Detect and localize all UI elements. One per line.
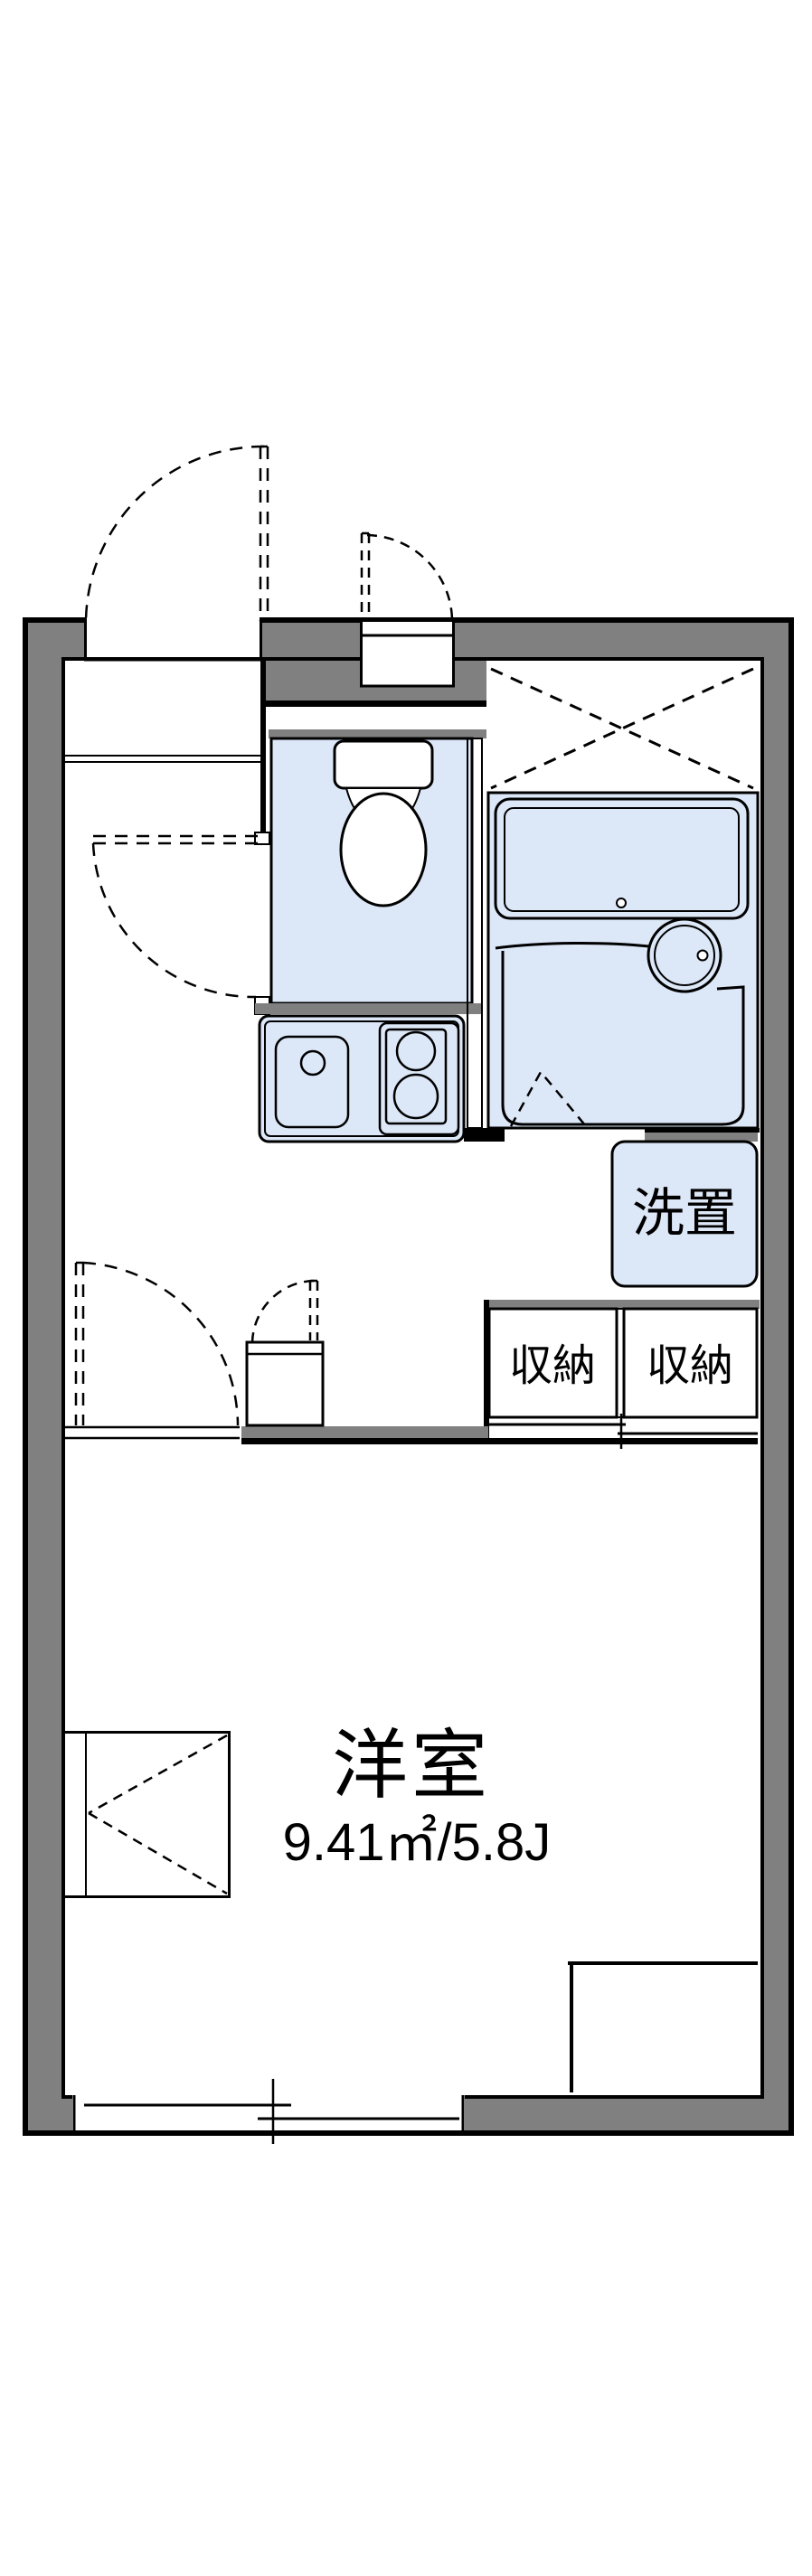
corner-area: [568, 1961, 758, 2092]
entrance-door-swing: [86, 447, 268, 621]
kitchen: [260, 1016, 464, 1142]
storage-left-label: 収納: [509, 1342, 596, 1390]
toilet-left-wall: [260, 661, 266, 832]
washer-space-label: 洗置: [632, 1184, 737, 1243]
washer-space: 洗置: [612, 1142, 757, 1286]
room-area-label: 9.41㎡/5.8J: [283, 1813, 552, 1872]
toilet-bowl: [341, 794, 426, 906]
entrance-door-arc: [86, 447, 264, 621]
entrance-opening: [84, 447, 268, 661]
side-window: [65, 1731, 231, 1898]
stove-burner-bottom: [394, 1075, 438, 1118]
sink-faucet: [301, 1051, 325, 1075]
floor-plan: 洗置 収納 収納: [0, 0, 812, 2576]
alcove-door-arc: [367, 535, 452, 619]
toilet-fixture: [335, 741, 432, 906]
alcove-door-swing: [362, 533, 452, 620]
floor-plan-page: 洗置 収納 収納: [0, 0, 812, 2576]
basin-drain: [698, 951, 708, 961]
wash-basin: [648, 919, 721, 992]
bathtub-drain: [617, 898, 626, 907]
room-name-label: 洋室: [332, 1723, 491, 1808]
stove-burner-top: [397, 1032, 435, 1070]
toilet-tank: [335, 741, 432, 788]
storage-right-label: 収納: [647, 1342, 733, 1390]
